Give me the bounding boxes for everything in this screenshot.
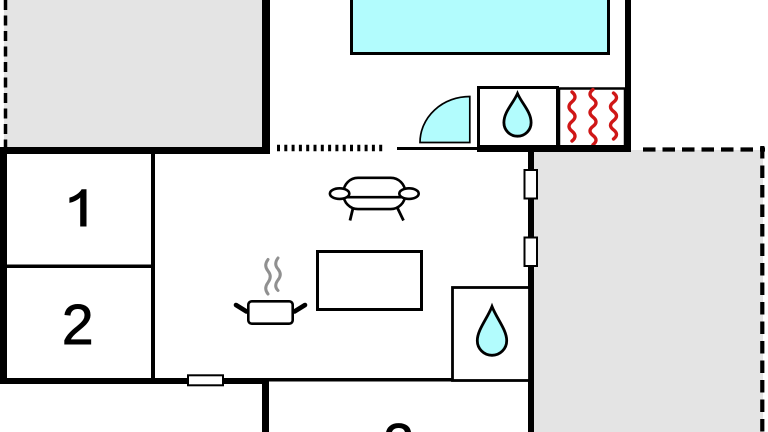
svg-text:2: 2 xyxy=(62,293,94,357)
svg-text:3: 3 xyxy=(384,412,415,432)
